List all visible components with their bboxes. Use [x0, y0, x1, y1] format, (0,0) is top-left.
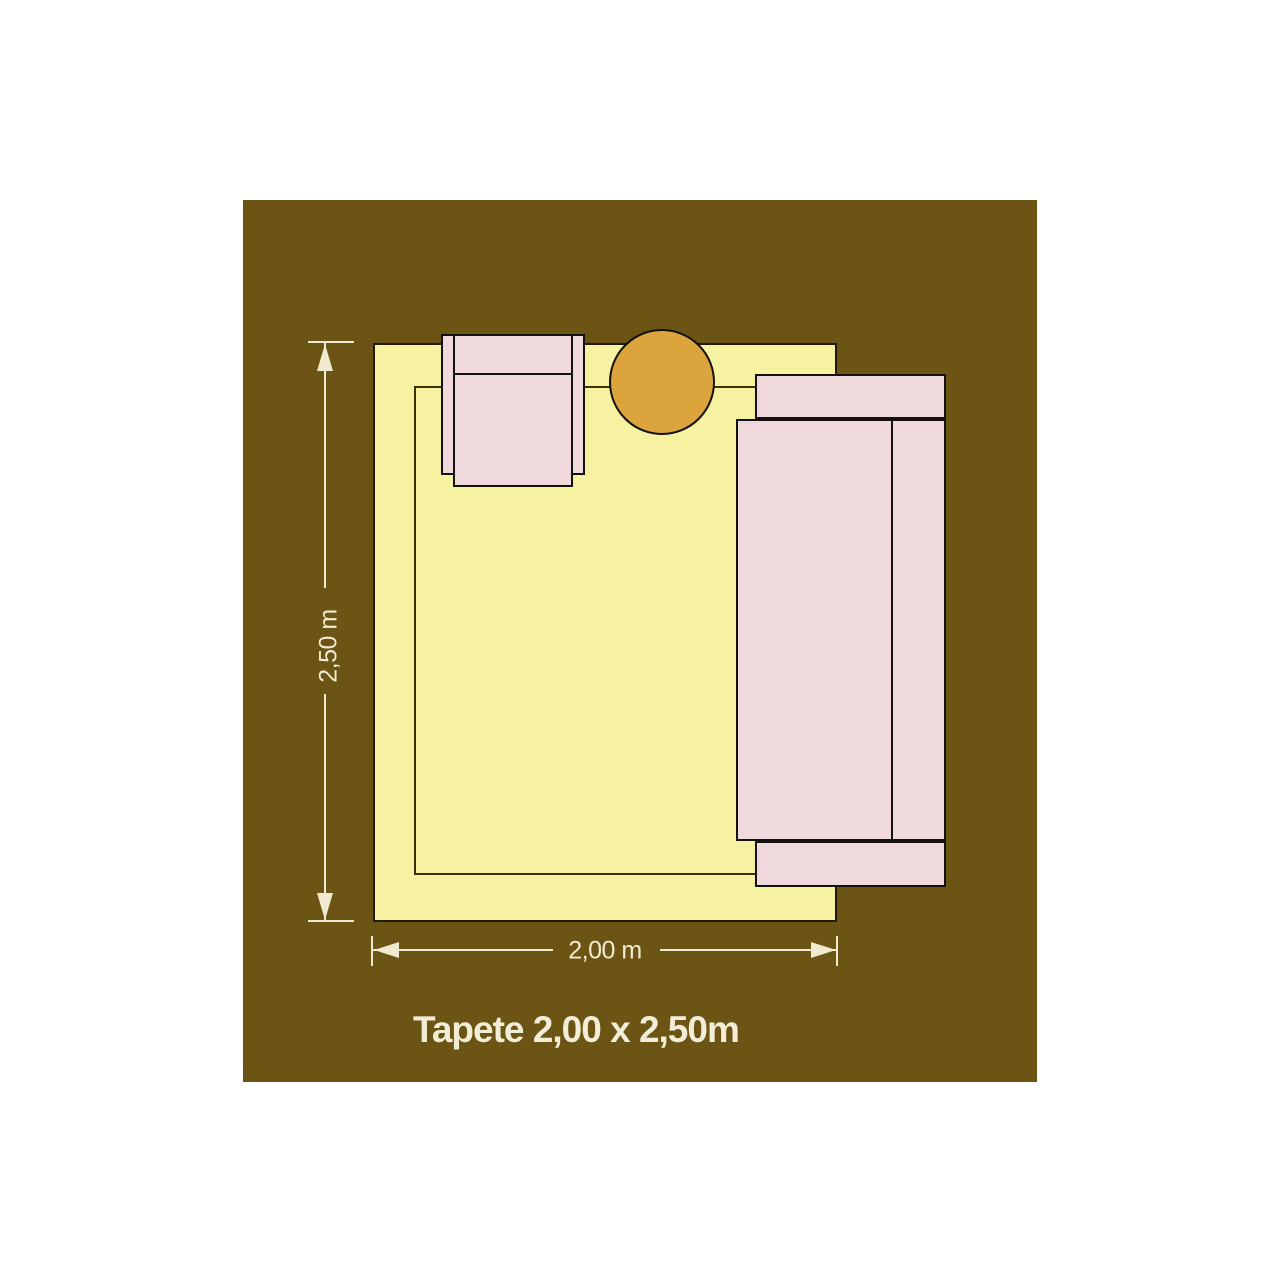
armchair-right-armrest — [571, 334, 585, 475]
sofa-top-armrest — [755, 374, 946, 419]
dimension-tick — [371, 936, 373, 966]
dimension-tick — [836, 936, 838, 966]
arrow-down-icon — [317, 893, 333, 920]
height-dimension-label: 2,50 m — [315, 609, 344, 682]
dimension-line — [372, 949, 553, 951]
dimension-line — [324, 694, 326, 922]
sofa-seat — [736, 419, 893, 841]
round-side-table — [609, 329, 715, 435]
armchair-seat — [453, 373, 573, 487]
arrow-right-icon — [811, 942, 836, 958]
dimension-line — [324, 342, 326, 588]
sofa-bottom-armrest — [755, 841, 946, 887]
dimension-tick — [308, 920, 354, 922]
diagram-caption: Tapete 2,00 x 2,50m — [413, 1009, 739, 1051]
sofa-backrest — [891, 419, 946, 841]
dimension-tick — [308, 341, 354, 343]
width-dimension-label: 2,00 m — [568, 937, 641, 966]
armchair-backrest — [453, 334, 573, 375]
